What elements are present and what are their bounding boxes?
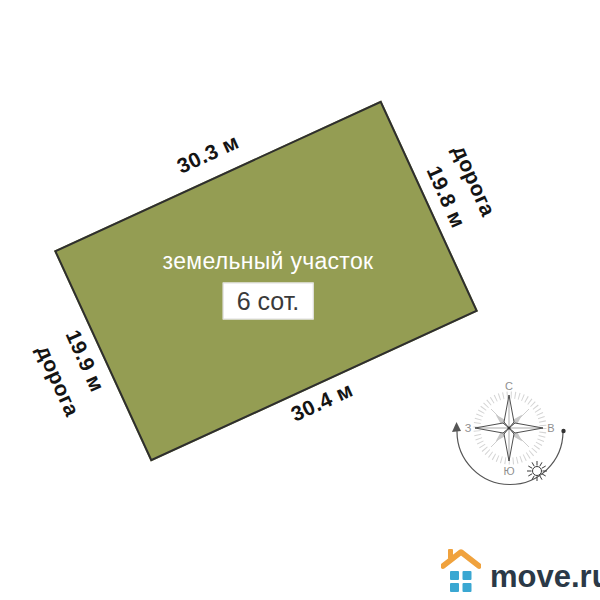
plot-title: земельный участок [163,248,374,275]
sun-icon [527,461,547,481]
logo-text: move.ru [490,561,600,592]
area-badge: 6 сот. [223,283,314,320]
compass-north-label: С [505,380,513,392]
compass-west-label: З [465,422,472,434]
arc-arrowhead-icon [452,422,461,432]
logo-squares [450,571,472,592]
land-plot-shape [54,100,478,461]
land-plot-diagram: 30.3 м дорога 19.8 м 19.9 м дорога 30.4 … [0,0,600,600]
compass-east-label: В [547,422,554,434]
moveru-logo: move.ru [441,548,600,592]
compass-rose-icon: С В З Ю [445,365,575,500]
house-icon [441,548,481,592]
compass-center-dot [507,426,510,429]
arc-start-dot [561,429,565,433]
compass-south-label: Ю [503,465,514,477]
